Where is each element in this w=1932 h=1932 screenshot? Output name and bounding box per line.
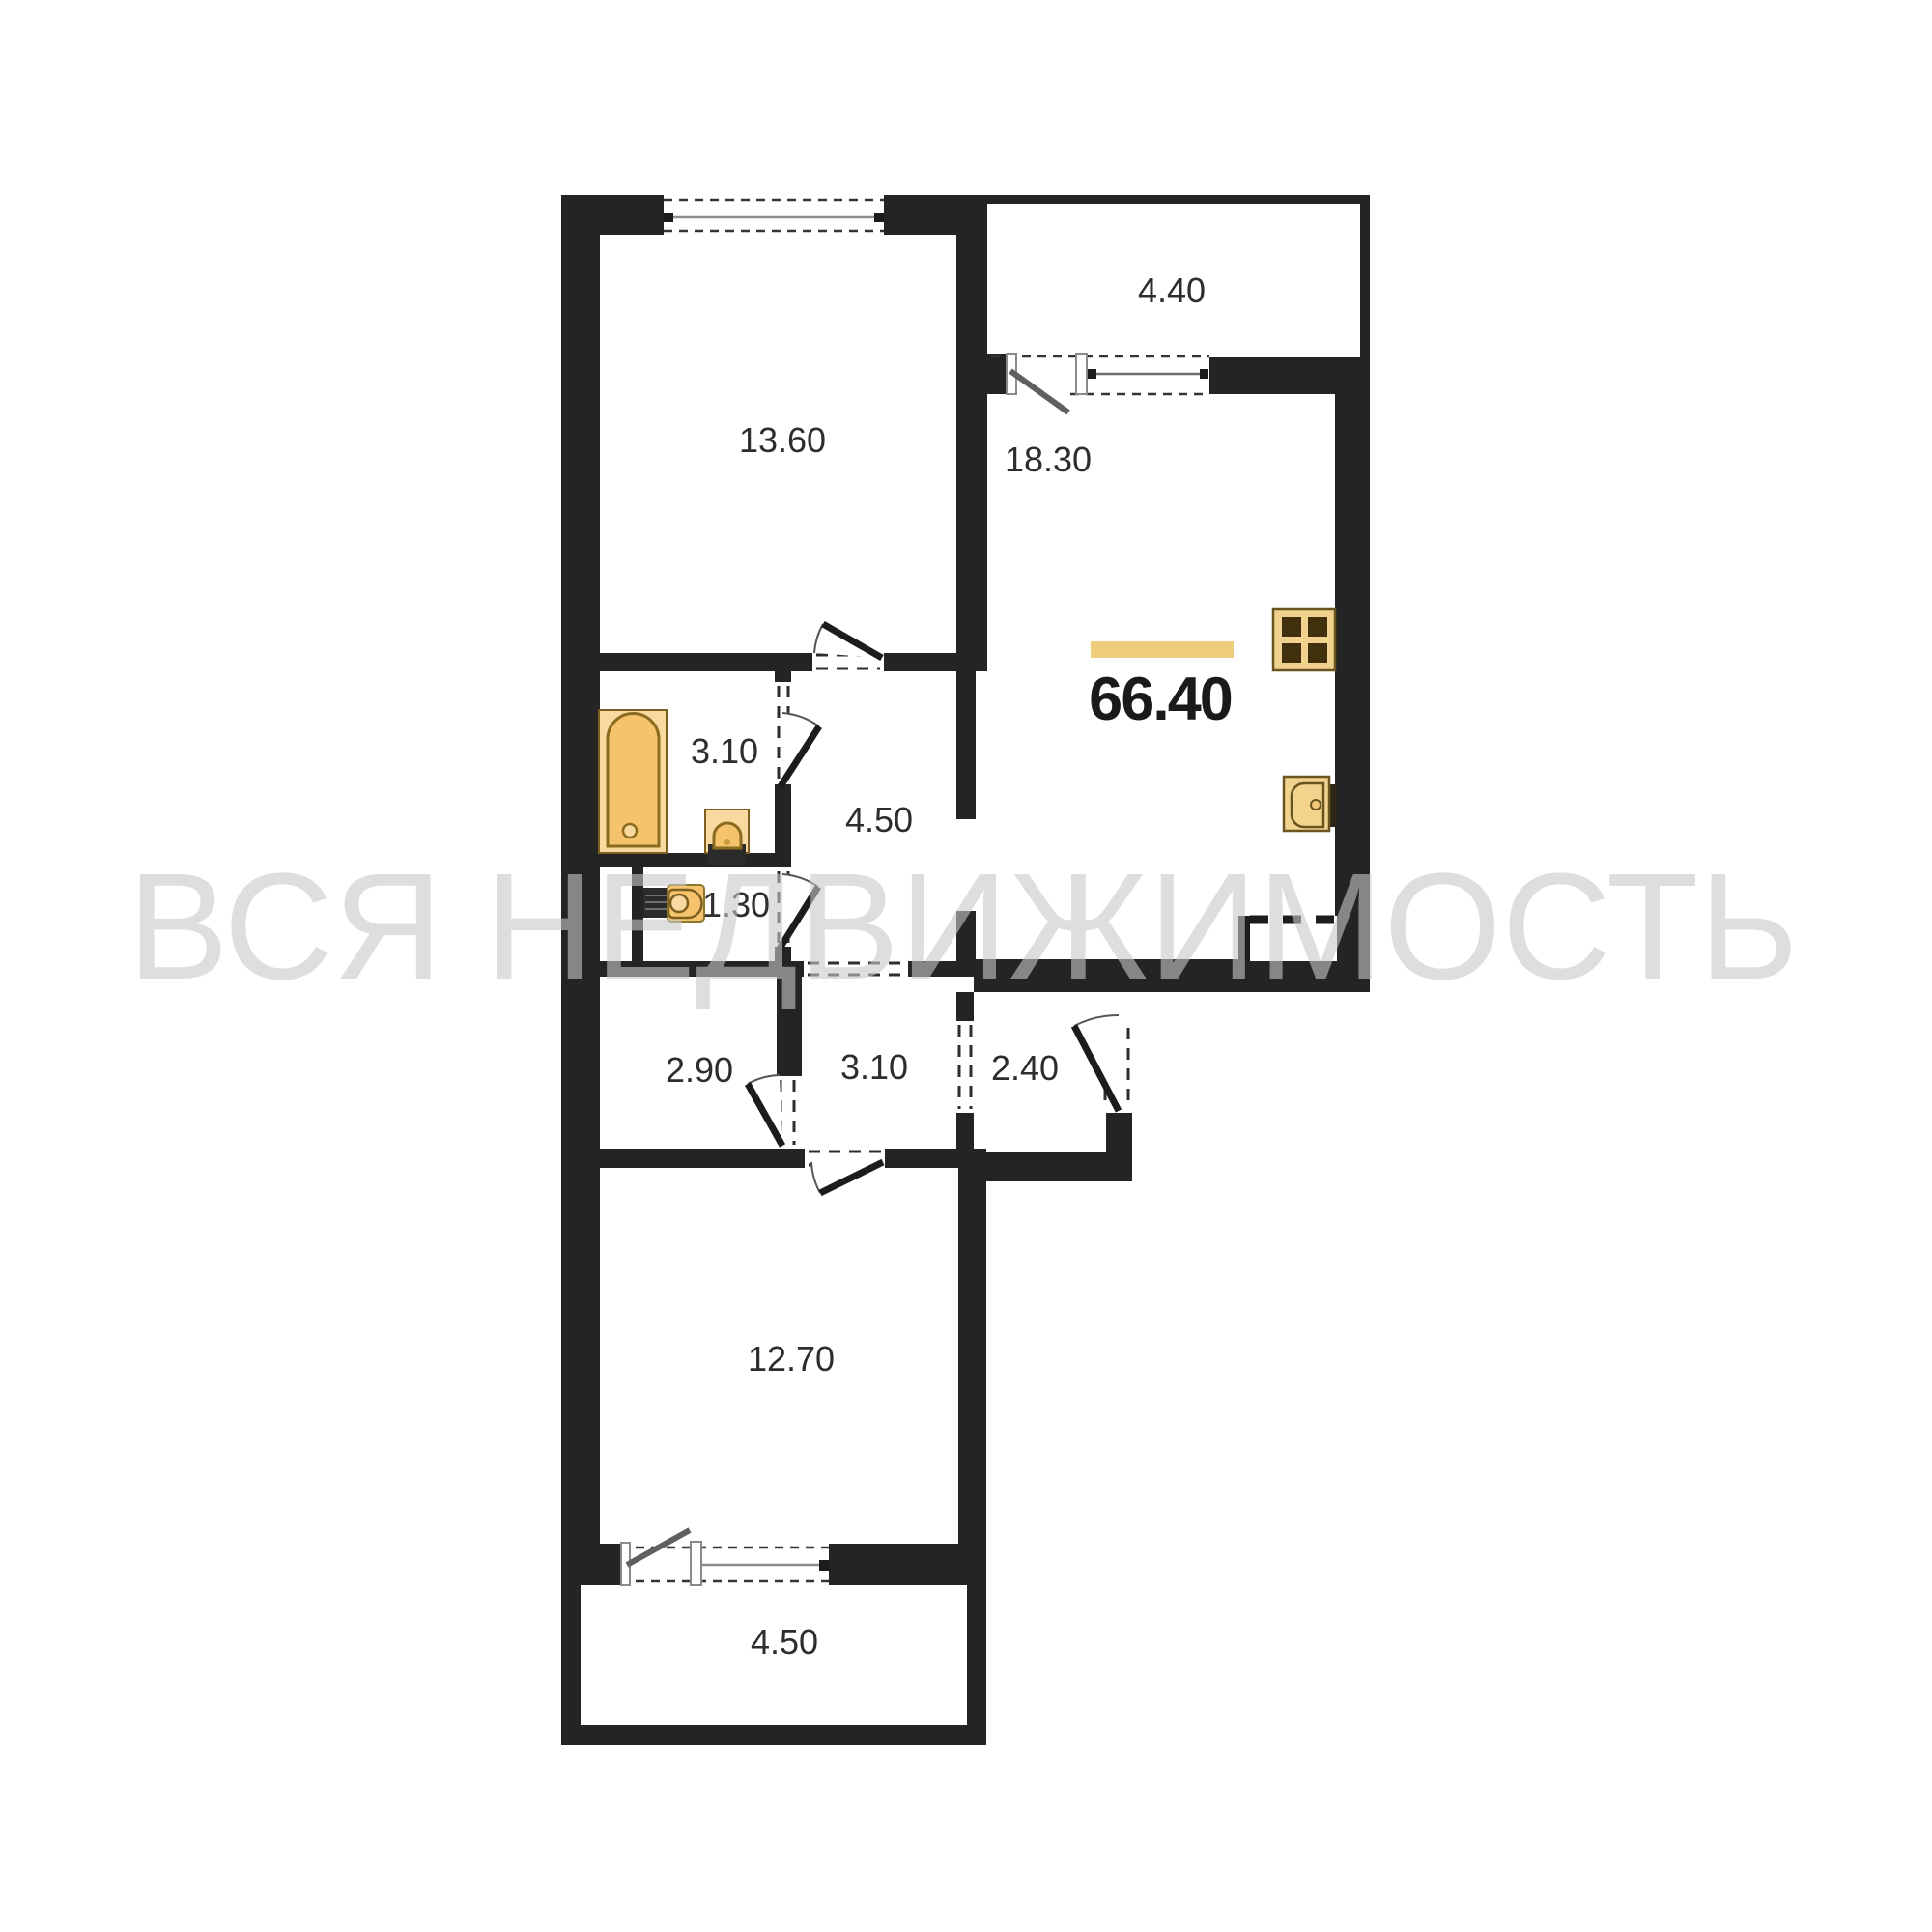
svg-text:66.40: 66.40 [1089, 666, 1232, 733]
svg-text:13.60: 13.60 [739, 420, 826, 460]
svg-text:ВСЯ НЕДВИЖИМОСТЬ: ВСЯ НЕДВИЖИМОСТЬ [128, 842, 1799, 1011]
svg-text:2.40: 2.40 [991, 1048, 1059, 1088]
svg-text:3.10: 3.10 [840, 1047, 908, 1087]
svg-text:4.40: 4.40 [1138, 270, 1206, 310]
svg-text:4.50: 4.50 [751, 1622, 818, 1662]
svg-text:12.70: 12.70 [748, 1339, 835, 1378]
svg-text:2.90: 2.90 [666, 1050, 733, 1090]
svg-text:18.30: 18.30 [1005, 440, 1092, 479]
svg-text:3.10: 3.10 [691, 731, 758, 771]
svg-text:4.50: 4.50 [845, 800, 913, 839]
